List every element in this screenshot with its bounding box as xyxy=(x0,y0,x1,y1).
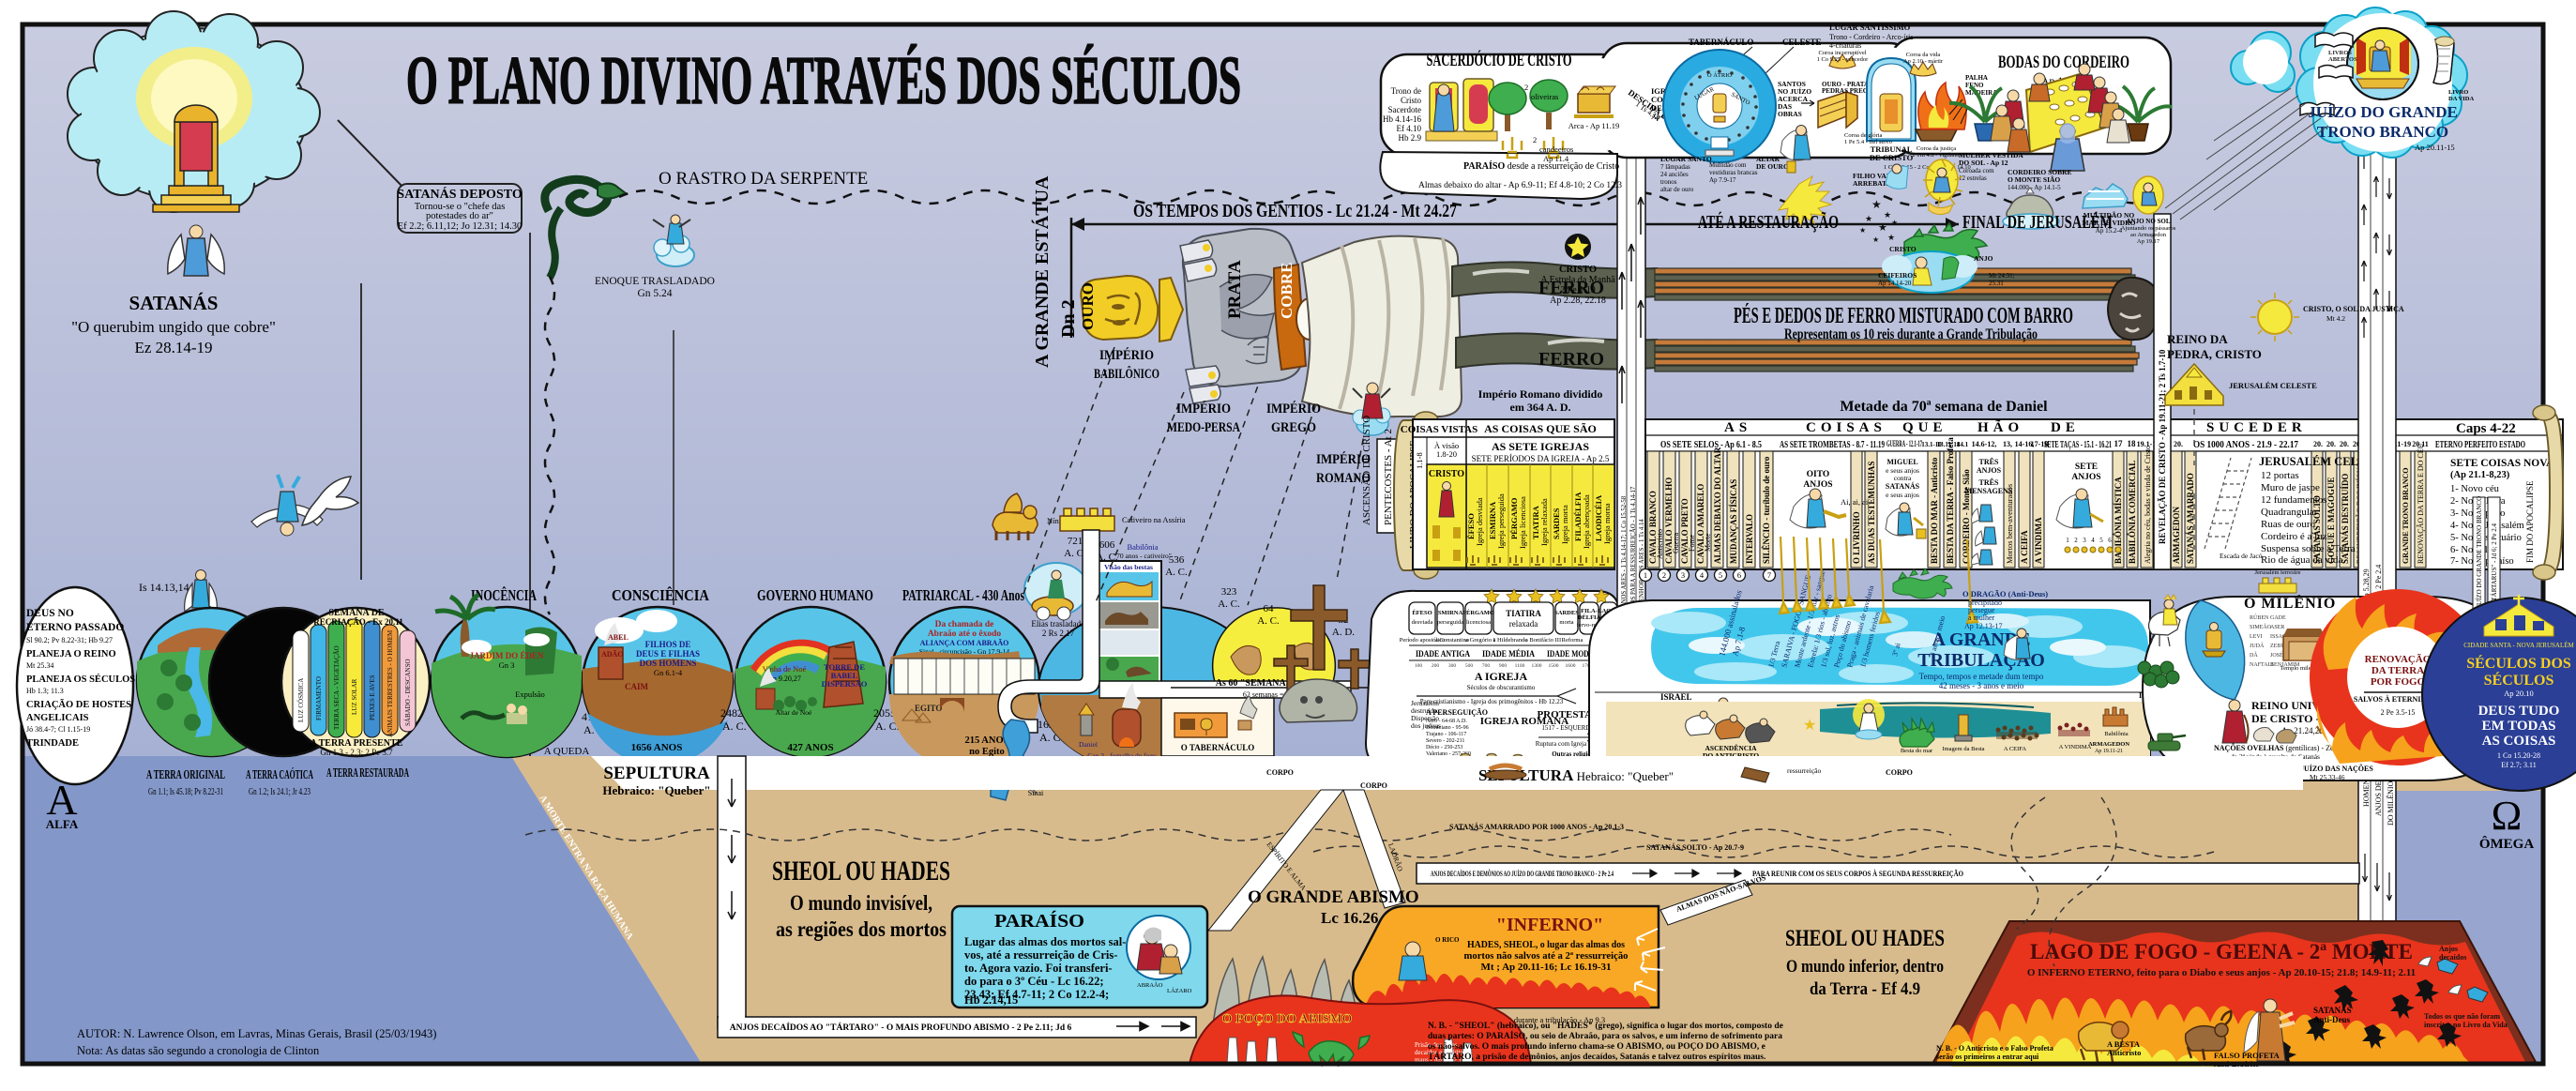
svg-text:Morte: Morte xyxy=(1704,533,1712,552)
svg-text:Gn 1.2; Is 24.1; Jr 4.23: Gn 1.2; Is 24.1; Jr 4.23 xyxy=(249,786,311,797)
svg-text:GADE: GADE xyxy=(2270,615,2286,621)
svg-text:OURO: OURO xyxy=(1079,282,1097,330)
svg-text:DE CRISTO: DE CRISTO xyxy=(1870,153,1914,162)
svg-text:JERUSALÉM CELESTE: JERUSALÉM CELESTE xyxy=(2229,381,2317,390)
svg-text:Severo - 202-211: Severo - 202-211 xyxy=(1426,738,1464,744)
svg-text:AUTOR: N. Lawrence Olson, em L: AUTOR: N. Lawrence Olson, em Lavras, Min… xyxy=(77,1027,436,1040)
svg-text:decaídos: decaídos xyxy=(2439,953,2466,962)
svg-text:TERRA SECA - VEGETAÇÃO: TERRA SECA - VEGETAÇÃO xyxy=(333,645,341,730)
svg-text:SATANÁS SOLTO - Ap 20.7-9: SATANÁS SOLTO - Ap 20.7-9 xyxy=(1646,842,1744,852)
svg-text:PLANEJA OS SÉCULOS: PLANEJA OS SÉCULOS xyxy=(26,674,135,685)
svg-text:dos judeus: dos judeus xyxy=(1411,721,1441,730)
svg-text:AS: AS xyxy=(1724,420,1751,435)
svg-text:desviada: desviada xyxy=(1412,619,1433,626)
svg-text:Império Romano dividido: Império Romano dividido xyxy=(1478,387,1603,401)
svg-text:PARA REUNIR COM OS SEUS CORPOS: PARA REUNIR COM OS SEUS CORPOS À SEGUNDA… xyxy=(1752,869,1963,878)
svg-text:CAIM: CAIM xyxy=(625,682,649,691)
svg-text:Ai, ai, ai: Ai, ai, ai xyxy=(1841,497,1869,507)
svg-text:Mt 4.2: Mt 4.2 xyxy=(2326,314,2345,323)
svg-text:Multidão com: Multidão com xyxy=(1709,161,1747,169)
svg-text:1656 ANOS: 1656 ANOS xyxy=(631,742,683,753)
svg-text:ALFA: ALFA xyxy=(46,817,79,831)
svg-text:Hb 2.14,15: Hb 2.14,15 xyxy=(964,993,1018,1007)
svg-text:ASER: ASER xyxy=(2270,625,2284,630)
svg-text:EM TODAS: EM TODAS xyxy=(2481,719,2555,734)
svg-text:2 Rs 2.17: 2 Rs 2.17 xyxy=(1042,629,1075,638)
svg-text:FINAL DE JERUSALÉM: FINAL DE JERUSALÉM xyxy=(1962,211,2113,233)
svg-text:ENOQUE TRASLADADO: ENOQUE TRASLADADO xyxy=(595,276,715,287)
svg-text:duas partes: O PARAÍSO, ou sei: duas partes: O PARAÍSO, ou seio de Abraã… xyxy=(1428,1030,1782,1041)
svg-text:Coroa da justiça: Coroa da justiça xyxy=(1917,145,1956,152)
svg-text:NAÇÕES OVELHAS (gentílicas) -: NAÇÕES OVELHAS (gentílicas) - Zc 8.25 xyxy=(2214,743,2349,752)
svg-text:SMIRNA: SMIRNA xyxy=(1438,610,1463,616)
svg-text:Escada de Jacó: Escada de Jacó xyxy=(2220,552,2263,560)
svg-text:potestades do ar": potestades do ar" xyxy=(426,211,493,221)
svg-text:FILHOS DE: FILHOS DE xyxy=(645,640,691,649)
svg-text:tronos: tronos xyxy=(1660,178,1677,186)
svg-text:SETE COISAS NOVAS: SETE COISAS NOVAS xyxy=(2450,458,2560,469)
svg-text:900: 900 xyxy=(1499,663,1508,669)
svg-text:OBRAS: OBRAS xyxy=(1778,110,1802,118)
svg-text:SÁBADO - DESCANSO: SÁBADO - DESCANSO xyxy=(404,659,412,726)
svg-text:A VINDIMA: A VINDIMA xyxy=(2059,744,2092,750)
svg-text:1.1-8: 1.1-8 xyxy=(1415,452,1424,469)
svg-text:SÉCULOS DOS: SÉCULOS DOS xyxy=(2466,654,2571,672)
svg-text:Igreja morna: Igreja morna xyxy=(1602,503,1612,544)
svg-text:altar de ouro: altar de ouro xyxy=(1660,186,1694,193)
svg-text:RECRIAÇÃO - Ex 20.11: RECRIAÇÃO - Ex 20.11 xyxy=(313,617,403,627)
svg-text:2: 2 xyxy=(1524,83,1528,92)
svg-text:200: 200 xyxy=(1432,663,1440,669)
svg-text:300: 300 xyxy=(1448,663,1457,669)
svg-text:DO SOL - Ap 12: DO SOL - Ap 12 xyxy=(1959,159,2008,167)
svg-text:Trono de: Trono de xyxy=(1391,86,1421,96)
svg-text:ÉFESO: ÉFESO xyxy=(1412,609,1432,616)
svg-text:IDADE ANTIGA: IDADE ANTIGA xyxy=(1416,649,1470,659)
svg-text:perseguida: perseguida xyxy=(1437,619,1463,626)
svg-text:Igreja desviada: Igreja desviada xyxy=(1475,497,1484,546)
svg-text:1 Pe 5.4 - fiel servo: 1 Pe 5.4 - fiel servo xyxy=(1844,139,1892,145)
svg-text:★: ★ xyxy=(1878,222,1887,234)
svg-text:SATANÁS: SATANÁS xyxy=(1886,481,1920,491)
svg-text:20.: 20. xyxy=(2174,440,2183,448)
svg-text:INOCÊNCIA: INOCÊNCIA xyxy=(471,586,538,604)
svg-text:Décio - 250-253: Décio - 250-253 xyxy=(1426,745,1462,750)
svg-text:ANJOS: ANJOS xyxy=(2071,473,2100,482)
svg-text:Nota: As datas são segundo a c: Nota: As datas são segundo a cronologia … xyxy=(77,1044,320,1057)
svg-text:Fome: Fome xyxy=(1688,534,1696,552)
svg-text:Metade da 70ª semana de Daniel: Metade da 70ª semana de Daniel xyxy=(1840,399,2048,415)
svg-text:18: 18 xyxy=(2128,439,2137,448)
svg-text:Anti-Deus: Anti-Deus xyxy=(2313,1015,2350,1024)
svg-text:Reforma: Reforma xyxy=(1562,637,1583,644)
svg-text:AS COISAS QUE SÃO: AS COISAS QUE SÃO xyxy=(1484,422,1597,435)
svg-text:ressurreição: ressurreição xyxy=(1787,766,1821,775)
svg-text:CRIAÇÃO DE HOSTES: CRIAÇÃO DE HOSTES xyxy=(26,699,131,710)
svg-text:N. B. - O Anticristo e o Falso: N. B. - O Anticristo e o Falso Profeta xyxy=(1936,1044,2053,1053)
svg-text:EGITO: EGITO xyxy=(915,704,942,713)
svg-text:JUÍZO DAS NAÇÕES: JUÍZO DAS NAÇÕES xyxy=(2300,764,2373,773)
svg-text:7 lâmpadas: 7 lâmpadas xyxy=(1660,163,1690,171)
svg-text:24 anciões: 24 anciões xyxy=(1660,171,1689,178)
svg-text:25.31: 25.31 xyxy=(1989,280,2004,287)
svg-text:A TERRA RESTAURADA: A TERRA RESTAURADA xyxy=(326,766,409,780)
svg-text:OITO: OITO xyxy=(1807,470,1830,479)
svg-text:ao Armagedon: ao Armagedon xyxy=(2130,232,2167,238)
svg-text:inscritos no Livro da Vida: inscritos no Livro da Vida xyxy=(2424,1021,2508,1029)
svg-text:ALMAS DEBAIXO DO ALTAR: ALMAS DEBAIXO DO ALTAR xyxy=(1713,447,1722,564)
svg-text:COBRE: COBRE xyxy=(1278,263,1296,319)
svg-text:★: ★ xyxy=(1871,198,1882,211)
svg-text:CRISTO: CRISTO xyxy=(1559,265,1597,275)
svg-text:BABILÔNICO: BABILÔNICO xyxy=(1094,366,1159,382)
svg-text:O INFERNO ETERNO, feito para o: O INFERNO ETERNO, feito para o Diabo e s… xyxy=(2027,967,2416,978)
svg-text:CORPO: CORPO xyxy=(1266,768,1294,777)
svg-text:Guerra: Guerra xyxy=(1672,532,1680,553)
svg-text:Gn 1.1; Is 45.18; Pv 8.22-31: Gn 1.1; Is 45.18; Pv 8.22-31 xyxy=(148,786,223,797)
svg-text:TRÊS: TRÊS xyxy=(1979,477,1999,487)
svg-text:Ap 2.10 - mártir: Ap 2.10 - mártir xyxy=(1903,58,1944,65)
svg-text:LÁZARO: LÁZARO xyxy=(1167,987,1192,994)
svg-text:Ef 2.2; 6.11,12; Jo 12.31; 14.: Ef 2.2; 6.11,12; Jo 12.31; 14.30 xyxy=(398,221,523,232)
svg-text:1100: 1100 xyxy=(1515,663,1525,669)
svg-text:a mulher: a mulher xyxy=(1968,614,1995,622)
svg-text:Besta do mar: Besta do mar xyxy=(1901,748,1933,754)
svg-text:★: ★ xyxy=(1803,718,1816,734)
svg-text:O TABERNÁCULO: O TABERNÁCULO xyxy=(1181,743,1254,752)
svg-text:DÃ: DÃ xyxy=(2250,651,2258,659)
svg-text:Muro de jaspe: Muro de jaspe xyxy=(2261,482,2320,493)
svg-text:CEIFEIROS: CEIFEIROS xyxy=(1878,271,1917,280)
svg-text:17: 17 xyxy=(2114,439,2124,448)
svg-text:PRATA: PRATA xyxy=(1225,260,1245,319)
svg-text:SHEOL OU HADES: SHEOL OU HADES xyxy=(1785,926,1945,951)
svg-text:LUZ SOLAR: LUZ SOLAR xyxy=(351,678,358,715)
svg-text:do para o 3º Céu - Lc 16.22;: do para o 3º Céu - Lc 16.22; xyxy=(964,975,1104,988)
svg-text:CORPO: CORPO xyxy=(1360,781,1387,790)
svg-text:4-criaturas: 4-criaturas xyxy=(1829,41,1861,50)
svg-text:A CEIFA: A CEIFA xyxy=(2020,530,2029,564)
svg-text:Mortos bem-aventurados: Mortos bem-aventurados xyxy=(2005,484,2014,564)
svg-text:Hebraico: "Queber": Hebraico: "Queber" xyxy=(602,783,710,797)
svg-text:IMPÉRIO: IMPÉRIO xyxy=(1266,401,1321,417)
svg-text:Anjos: Anjos xyxy=(2439,945,2458,953)
svg-text:Mt 24.31;: Mt 24.31; xyxy=(1989,272,2015,280)
svg-text:Almas debaixo do altar - Ap 6.: Almas debaixo do altar - Ap 6.9-11; Ef 4… xyxy=(1418,180,1622,190)
svg-text:CRISTO, O SOL DA JUSTIÇA: CRISTO, O SOL DA JUSTIÇA xyxy=(2303,305,2404,313)
svg-text:IDADE MÉDIA: IDADE MÉDIA xyxy=(1482,649,1535,659)
svg-text:Séculos de obscurantismo: Séculos de obscurantismo xyxy=(1467,684,1536,691)
svg-text:REVELAÇÃO DE CRISTO - Ap 19.11: REVELAÇÃO DE CRISTO - Ap 19.11-21; 2 Ts … xyxy=(2158,349,2167,544)
svg-text:144.000 - Ap 14.1-5: 144.000 - Ap 14.1-5 xyxy=(2008,184,2061,191)
svg-text:PENTECOSTES - At 2: PENTECOSTES - At 2 xyxy=(1383,429,1394,525)
svg-text:Ap 19.17: Ap 19.17 xyxy=(2137,238,2160,245)
svg-text:12 portas: 12 portas xyxy=(2261,470,2299,481)
svg-text:PALHA: PALHA xyxy=(1965,74,1988,82)
svg-text:A. C.: A. C. xyxy=(722,720,747,733)
svg-text:da Terra - Ef 4.9: da Terra - Ef 4.9 xyxy=(1810,979,1920,999)
svg-text:JUDÁ: JUDÁ xyxy=(2250,642,2265,649)
svg-text:PARAÍSO desde a ressurreição d: PARAÍSO desde a ressurreição de Cristo xyxy=(1463,160,1619,172)
svg-text:e seus anjos: e seus anjos xyxy=(1886,491,1919,499)
svg-text:ANJOS DECAÍDOS AO "TÁRTARO" -: ANJOS DECAÍDOS AO "TÁRTARO" - O MAIS PRO… xyxy=(730,1022,1072,1033)
svg-text:FIRMAMENTO: FIRMAMENTO xyxy=(315,676,323,720)
svg-text:no Egito: no Egito xyxy=(969,747,1005,757)
svg-text:SEPULTURA: SEPULTURA xyxy=(603,764,710,783)
svg-text:Altar de Noé: Altar de Noé xyxy=(776,708,812,717)
svg-text:Ap 2.28, 22.18: Ap 2.28, 22.18 xyxy=(1550,295,1606,306)
svg-text:Rio de água da vida: Rio de água da vida xyxy=(2261,554,2342,566)
svg-text:morta: morta xyxy=(1559,619,1573,626)
svg-text:ETERNO PASSADO: ETERNO PASSADO xyxy=(26,622,124,633)
svg-text:A. C.: A. C. xyxy=(1165,567,1188,578)
svg-text:FILA-: FILA- xyxy=(1581,608,1598,614)
svg-text:CORPO: CORPO xyxy=(1886,768,1913,777)
svg-text:vestiduras brancas: vestiduras brancas xyxy=(1709,169,1758,176)
svg-text:N. B. - "SHEOL" (hebraico), ou: N. B. - "SHEOL" (hebraico), ou "HADES" (… xyxy=(1428,1021,1783,1031)
svg-text:CRISTO: CRISTO xyxy=(1889,245,1917,253)
svg-text:215 ANOS: 215 ANOS xyxy=(965,735,1009,746)
svg-text:COISAS VISTAS: COISAS VISTAS xyxy=(1401,424,1477,435)
svg-text:606: 606 xyxy=(1099,539,1115,551)
svg-text:4: 4 xyxy=(2091,537,2095,544)
svg-text:O RASTRO DA SERPENTE: O RASTRO DA SERPENTE xyxy=(659,169,868,189)
svg-text:42 meses - 3 anos e meio: 42 meses - 3 anos e meio xyxy=(1939,681,2024,690)
svg-text:Ap 7.9-17: Ap 7.9-17 xyxy=(1709,176,1736,184)
svg-text:contra: contra xyxy=(1894,474,1912,482)
svg-text:SUCEDER: SUCEDER xyxy=(2206,420,2307,435)
svg-text:ABEL: ABEL xyxy=(608,633,629,642)
svg-text:2 Pe 3.5-15: 2 Pe 3.5-15 xyxy=(2381,708,2416,717)
svg-text:1.8-20: 1.8-20 xyxy=(1436,449,1457,459)
svg-text:Anticristo: Anticristo xyxy=(1656,529,1664,559)
svg-text:A GRANDE ESTÁTUA: A GRANDE ESTÁTUA xyxy=(1031,175,1053,368)
svg-text:A. C.: A. C. xyxy=(1218,599,1240,610)
svg-text:ASCENSÃO DE CRISTO: ASCENSÃO DE CRISTO xyxy=(1361,416,1372,525)
svg-text:ANIMAIS TERRESTRES - O HOMEM: ANIMAIS TERRESTRES - O HOMEM xyxy=(386,629,394,737)
svg-text:536: 536 xyxy=(1169,554,1185,566)
svg-text:13,: 13, xyxy=(2003,440,2012,448)
svg-text:1500: 1500 xyxy=(1549,663,1559,669)
svg-text:OS 1000 ANOS - 21.9 - 22.17: OS 1000 ANOS - 21.9 - 22.17 xyxy=(2193,439,2298,450)
svg-text:a Hildebrando: a Hildebrando xyxy=(1493,637,1527,644)
svg-text:5- Novo santuário: 5- Novo santuário xyxy=(2450,533,2522,543)
svg-text:Ef 2.7; 3.11: Ef 2.7; 3.11 xyxy=(2501,761,2536,769)
svg-text:JUÍZO DO GRANDE: JUÍZO DO GRANDE xyxy=(2308,103,2458,121)
svg-text:IMPÉRIO: IMPÉRIO xyxy=(1176,401,1231,417)
svg-text:Quadrangular: Quadrangular xyxy=(2261,507,2318,518)
svg-text:AS DUAS TESTEMUNHAS: AS DUAS TESTEMUNHAS xyxy=(1867,462,1876,564)
svg-text:Hb 2.9: Hb 2.9 xyxy=(1399,133,1422,143)
svg-text:PEIXES E AVES: PEIXES E AVES xyxy=(369,674,376,720)
svg-text:Representam os 10 reis durante: Representam os 10 reis durante a Grande … xyxy=(1784,326,2038,342)
svg-text:SATANÁS DEPOSTO: SATANÁS DEPOSTO xyxy=(397,186,523,202)
svg-text:Abraão até o êxodo: Abraão até o êxodo xyxy=(928,629,1002,639)
svg-text:14.6-12,: 14.6-12, xyxy=(1972,440,1997,448)
svg-text:ANJOS DECAÍDOS E DEMÔNIOS AO J: ANJOS DECAÍDOS E DEMÔNIOS AO JUÍZO DO GR… xyxy=(1431,869,1614,878)
svg-text:Babilônia: Babilônia xyxy=(2104,731,2128,737)
svg-text:DOS HOMENS: DOS HOMENS xyxy=(640,659,697,668)
svg-text:★: ★ xyxy=(1865,214,1872,223)
svg-text:64: 64 xyxy=(1264,603,1275,614)
svg-text:2 Tm 4.8 - vigilante: 2 Tm 4.8 - vigilante xyxy=(1912,152,1961,159)
svg-text:LIVRO: LIVRO xyxy=(2448,89,2468,96)
svg-text:SACERDÓCIO DE CRISTO: SACERDÓCIO DE CRISTO xyxy=(1427,50,1572,70)
svg-text:6: 6 xyxy=(2108,537,2112,544)
svg-text:O LIVRINHO: O LIVRINHO xyxy=(1852,511,1861,564)
svg-text:GUERRA - 12.1-17: GUERRA - 12.1-17 xyxy=(1887,439,1922,448)
svg-text:Mt 25.34: Mt 25.34 xyxy=(26,661,53,670)
svg-text:QUE: QUE xyxy=(1902,420,1947,435)
svg-text:CONSCIÊNCIA: CONSCIÊNCIA xyxy=(612,586,710,604)
svg-text:A Estrela da Manhã: A Estrela da Manhã xyxy=(1540,275,1615,285)
svg-text:12 fundamentos: 12 fundamentos xyxy=(2261,494,2327,506)
svg-text:Elias trasladado: Elias trasladado xyxy=(1031,619,1085,629)
svg-text:RENOVAÇÃO: RENOVAÇÃO xyxy=(2365,654,2432,665)
svg-text:INTERVALO: INTERVALO xyxy=(1745,514,1754,564)
svg-text:MIGUEL: MIGUEL xyxy=(1887,458,1917,466)
svg-text:MEDO-PERSA: MEDO-PERSA xyxy=(1167,420,1240,435)
svg-text:1: 1 xyxy=(2066,537,2069,544)
svg-text:CRISTO: CRISTO xyxy=(1429,469,1464,479)
svg-text:mortos não salvos até a 2ª res: mortos não salvos até a 2ª ressurreição xyxy=(1464,950,1629,962)
svg-text:DISPERSÃO: DISPERSÃO xyxy=(822,679,868,689)
svg-text:MENSAGENS: MENSAGENS xyxy=(1965,487,2013,495)
svg-text:BODAS DO CORDEIRO: BODAS DO CORDEIRO xyxy=(1998,53,2129,72)
svg-text:ISRAEL: ISRAEL xyxy=(1660,692,1692,702)
svg-text:TRINDADE: TRINDADE xyxy=(26,738,79,749)
svg-text:O GRANDE ABISMO: O GRANDE ABISMO xyxy=(1248,887,1419,907)
svg-text:1 Co 15.20-28: 1 Co 15.20-28 xyxy=(2497,751,2540,760)
svg-text:1600: 1600 xyxy=(1566,663,1576,669)
svg-text:Daniel: Daniel xyxy=(1079,740,1098,749)
svg-text:Igreja relaxada: Igreja relaxada xyxy=(1539,498,1549,546)
svg-text:ÔMEGA: ÔMEGA xyxy=(2479,836,2534,852)
svg-text:7: 7 xyxy=(2116,537,2120,544)
svg-text:LUGAR SANTO: LUGAR SANTO xyxy=(1660,155,1712,163)
svg-text:Coroada com: Coroada com xyxy=(1959,167,1994,174)
svg-text:LAGO DE FOGO - GEENA - 2ª MORT: LAGO DE FOGO - GEENA - 2ª MORTE xyxy=(2030,940,2413,963)
svg-text:Todos os que não foram: Todos os que não foram xyxy=(2424,1012,2500,1021)
svg-text:DÉLFIA: DÉLFIA xyxy=(1578,614,1601,621)
svg-text:vos, até a ressurreição de Cri: vos, até a ressurreição de Cris- xyxy=(964,948,1117,962)
svg-text:ANGELICAIS: ANGELICAIS xyxy=(26,713,89,723)
svg-text:323: 323 xyxy=(1221,586,1237,598)
svg-text:AS COISAS: AS COISAS xyxy=(2482,734,2556,749)
svg-text:A TERRA ORIGINAL: A TERRA ORIGINAL xyxy=(146,768,225,782)
svg-text:AS SETE TROMBETAS - 8.7 - 11.1: AS SETE TROMBETAS - 8.7 - 11.19 xyxy=(1780,439,1885,450)
svg-text:MUDANÇAS FÍSICAS: MUDANÇAS FÍSICAS xyxy=(1729,479,1738,564)
svg-text:O PLANO DIVINO ATRAVÉS DOS SÉC: O PLANO DIVINO ATRAVÉS DOS SÉCULOS xyxy=(406,42,1241,118)
svg-text:RENOVAÇÃO DA TERRA E DO CÉU: RENOVAÇÃO DA TERRA E DO CÉU xyxy=(2416,443,2425,564)
svg-text:JARDIM DO ÉDEN: JARDIM DO ÉDEN xyxy=(469,651,544,660)
svg-text:DE OURO: DE OURO xyxy=(1756,162,1789,171)
svg-text:GREGO: GREGO xyxy=(1271,420,1316,435)
svg-text:CAVALO PRETO: CAVALO PRETO xyxy=(1680,498,1690,564)
svg-text:O DRAGÃO (Anti-Deus): O DRAGÃO (Anti-Deus) xyxy=(1962,589,2048,599)
svg-text:7: 7 xyxy=(1767,570,1771,580)
svg-text:Sl 90.2; Pv 8.22-31; Hb 9.27: Sl 90.2; Pv 8.22-31; Hb 9.27 xyxy=(26,636,113,644)
svg-text:SÉCULOS: SÉCULOS xyxy=(2484,671,2554,689)
svg-text:PARAÍSO: PARAÍSO xyxy=(994,910,1084,932)
svg-text:Gn 6.1-4: Gn 6.1-4 xyxy=(654,668,683,677)
svg-text:DEUS TUDO: DEUS TUDO xyxy=(2478,704,2560,719)
svg-text:3: 3 xyxy=(1681,570,1685,580)
svg-text:Gn 5.24: Gn 5.24 xyxy=(637,288,672,299)
svg-text:Hb 1.3; 11.3: Hb 1.3; 11.3 xyxy=(26,687,64,695)
svg-text:A IGREJA: A IGREJA xyxy=(1475,670,1528,683)
svg-text:ARMAGEDON: ARMAGEDON xyxy=(2172,507,2181,564)
svg-text:as regiões dos mortos: as regiões dos mortos xyxy=(776,917,947,941)
svg-text:ADÃO: ADÃO xyxy=(601,650,624,659)
svg-text:O mundo inferior, dentro: O mundo inferior, dentro xyxy=(1786,957,1944,977)
svg-text:Gn 1.3 - 2.3; 2 Pe 3.7: Gn 1.3 - 2.3; 2 Pe 3.7 xyxy=(320,748,393,757)
svg-text:Cristo: Cristo xyxy=(1401,96,1422,105)
svg-text:licenciosa: licenciosa xyxy=(1466,619,1491,626)
svg-text:1517 - ESQUERDA: 1517 - ESQUERDA xyxy=(1541,724,1595,732)
svg-text:Ap 20.11-15: Ap 20.11-15 xyxy=(2415,143,2455,152)
svg-text:ABERTOS: ABERTOS xyxy=(2328,56,2357,63)
svg-text:to. Agora vazio. Foi transfe: to. Agora vazio. Foi transferi- xyxy=(964,962,1113,975)
svg-text:★: ★ xyxy=(1872,235,1879,244)
svg-text:721: 721 xyxy=(1068,536,1083,547)
svg-text:Hb 4.14-16: Hb 4.14-16 xyxy=(1383,114,1421,124)
svg-text:Cordeiro é a luz: Cordeiro é a luz xyxy=(2261,531,2327,542)
svg-text:Ef 4.10: Ef 4.10 xyxy=(1397,124,1422,133)
svg-text:Mt ; Ap 20.11-16; Lc 16.19-31: Mt ; Ap 20.11-16; Lc 16.19-31 xyxy=(1480,962,1611,973)
svg-text:SATANÁS AMARRADO POR 1000 ANOS: SATANÁS AMARRADO POR 1000 ANOS - Ap 20.1… xyxy=(1449,822,1624,831)
svg-text:ANJO: ANJO xyxy=(1974,254,1993,263)
svg-text:LUZ CÓSMICA: LUZ CÓSMICA xyxy=(297,678,305,722)
svg-text:SIMEÃO: SIMEÃO xyxy=(2250,623,2272,630)
svg-text:Lc 16.26: Lc 16.26 xyxy=(1321,909,1378,927)
svg-text:★: ★ xyxy=(1891,219,1898,227)
svg-text:Ap 20.10: Ap 20.10 xyxy=(2504,689,2534,698)
svg-text:★: ★ xyxy=(1859,226,1866,235)
svg-text:RÚBEN: RÚBEN xyxy=(2250,614,2269,621)
svg-text:ALIANÇA COM ABRAÃO: ALIANÇA COM ABRAÃO xyxy=(920,639,1009,647)
svg-text:LEVI: LEVI xyxy=(2250,634,2263,640)
svg-text:GOVERNO HUMANO: GOVERNO HUMANO xyxy=(757,586,873,604)
svg-text:Sacerdote: Sacerdote xyxy=(1388,105,1421,114)
svg-text:Ap 12.13-17: Ap 12.13-17 xyxy=(1964,622,2002,630)
svg-text:2: 2 xyxy=(1533,135,1537,144)
svg-text:Igreja morta: Igreja morta xyxy=(1560,505,1569,544)
svg-text:SETE: SETE xyxy=(2075,462,2098,472)
svg-text:BESTA DA TERRA - Falso Profeta: BESTA DA TERRA - Falso Profeta xyxy=(1946,437,1955,564)
svg-text:TABERNÁCULO: TABERNÁCULO xyxy=(1689,38,1753,47)
svg-text:SATANÁS: SATANÁS xyxy=(129,292,219,314)
svg-text:DA TERRA: DA TERRA xyxy=(2371,665,2424,676)
svg-text:Coroa incorruptível: Coroa incorruptível xyxy=(1818,50,1866,56)
svg-text:5: 5 xyxy=(1719,570,1722,580)
svg-text:IMPÉRIO: IMPÉRIO xyxy=(1099,347,1154,363)
svg-text:Coroa de glória: Coroa de glória xyxy=(1844,132,1883,139)
svg-text:2: 2 xyxy=(2074,537,2078,544)
svg-text:a Constantino: a Constantino xyxy=(1435,637,1469,644)
svg-text:Ap 14.14-20: Ap 14.14-20 xyxy=(1878,280,1912,287)
svg-text:Da chamada de: Da chamada de xyxy=(935,620,994,629)
svg-text:CORDEIRO - Monte Sião: CORDEIRO - Monte Sião xyxy=(1962,469,1971,564)
svg-text:CELESTE: CELESTE xyxy=(1782,38,1822,47)
svg-text:Ap 19.11-21: Ap 19.11-21 xyxy=(2095,749,2123,754)
svg-text:PLANEJA O REINO: PLANEJA O REINO xyxy=(26,649,116,659)
svg-text:PEDRA, CRISTO: PEDRA, CRISTO xyxy=(2167,347,2262,361)
svg-text:SHEOL OU HADES: SHEOL OU HADES xyxy=(772,856,950,886)
svg-text:em 364 A. D.: em 364 A. D. xyxy=(1510,401,1571,414)
svg-text:Arca - Ap 11.19: Arca - Ap 11.19 xyxy=(1568,121,1619,130)
svg-text:Igreja perseguida: Igreja perseguida xyxy=(1496,493,1506,549)
